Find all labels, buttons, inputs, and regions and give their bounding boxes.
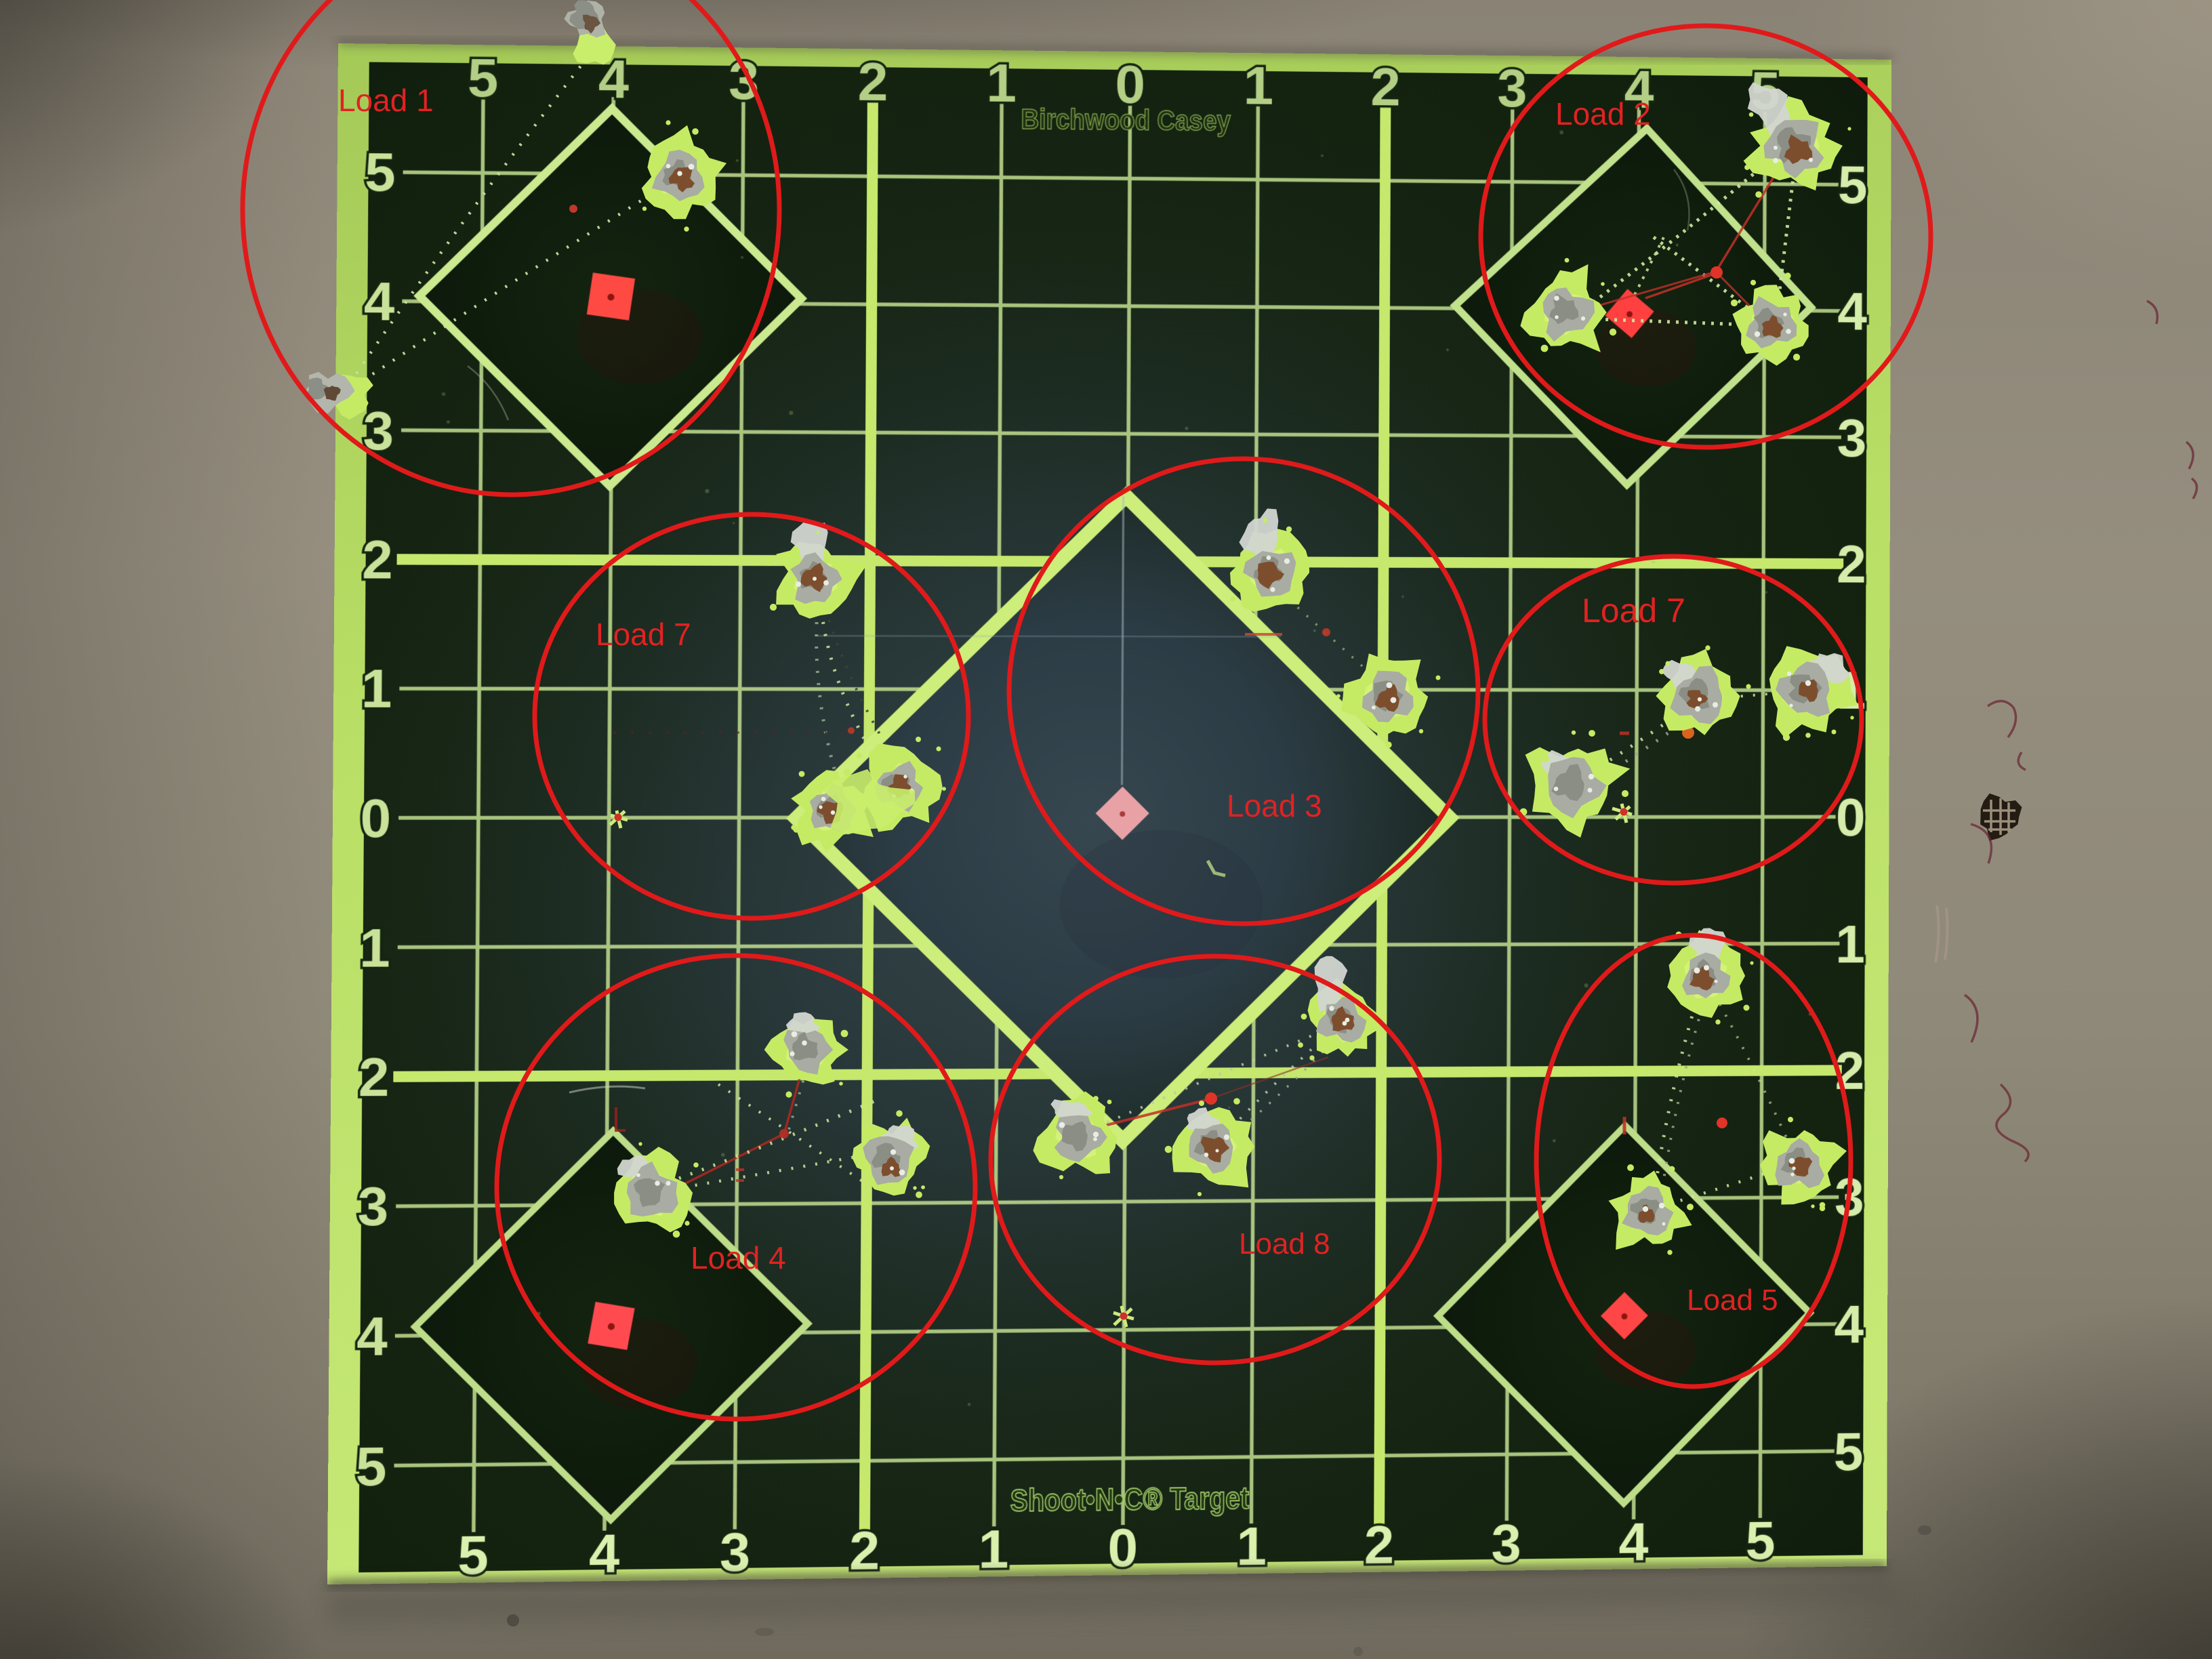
svg-text:Load 7: Load 7	[596, 617, 691, 652]
svg-text:Load 1: Load 1	[338, 83, 434, 118]
svg-text:Load 2: Load 2	[1555, 96, 1651, 131]
svg-text:Load 3: Load 3	[1227, 788, 1322, 823]
svg-text:Load 5: Load 5	[1687, 1284, 1778, 1317]
svg-text:Load 4: Load 4	[691, 1240, 786, 1275]
svg-text:Load 8: Load 8	[1239, 1227, 1330, 1261]
svg-text:Load 7: Load 7	[1582, 592, 1685, 630]
